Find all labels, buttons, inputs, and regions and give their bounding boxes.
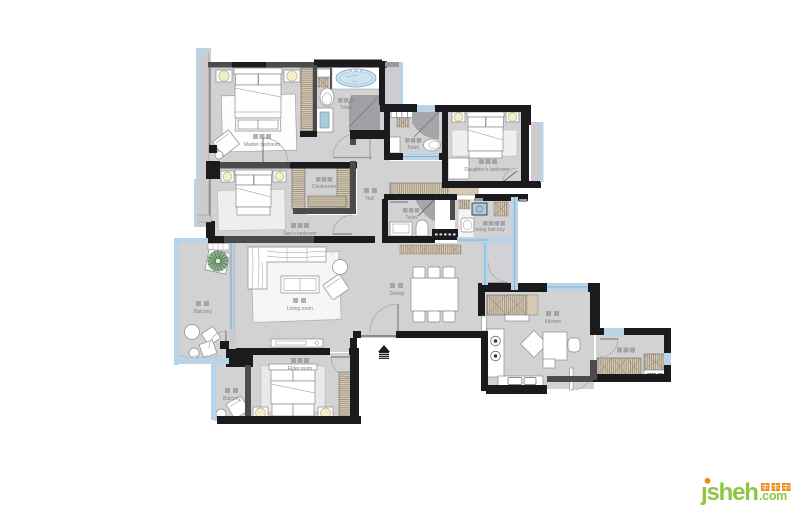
svg-text:Dining: Dining [390,291,404,297]
svg-text:Balcony: Balcony [194,309,212,315]
svg-text:Son's bedroom: Son's bedroom [283,231,316,237]
svg-text:Toilet: Toilet [340,105,352,111]
svg-text:Living room: Living room [287,306,313,312]
svg-text:Elder room: Elder room [288,366,312,372]
svg-text:Toilet: Toilet [407,145,419,151]
svg-text:Hall: Hall [366,196,375,202]
svg-text:Kitchen: Kitchen [545,319,562,325]
svg-text:.com: .com [759,489,787,503]
svg-text:Daughter's bedroom: Daughter's bedroom [464,167,509,173]
svg-text:Toilet: Toilet [405,215,417,221]
svg-text:Balcony: Balcony [223,396,241,402]
svg-text:Cloakroom: Cloakroom [312,184,336,190]
svg-text:Living balcony: Living balcony [473,227,505,233]
svg-text:Master bedroom: Master bedroom [244,142,280,148]
